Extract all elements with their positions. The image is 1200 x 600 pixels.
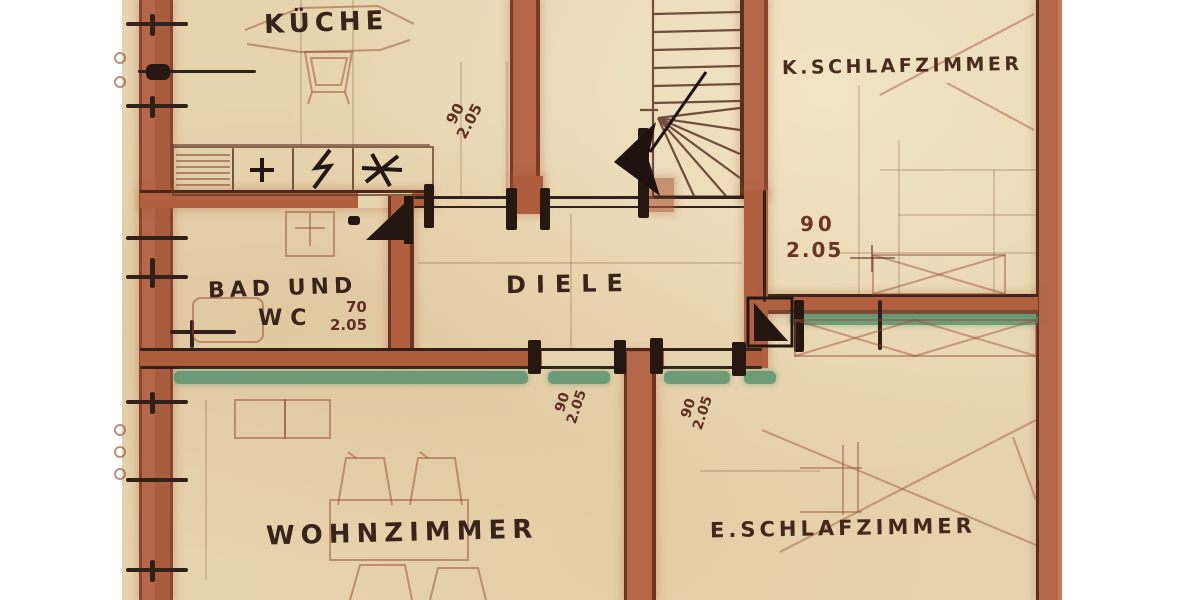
dim-kschlafzimmer-door-height: 2.05 bbox=[786, 238, 843, 262]
sink-plus-symbol bbox=[250, 158, 274, 182]
stove-symbol bbox=[314, 150, 330, 188]
dim-bad-door-height: 2.05 bbox=[330, 316, 367, 334]
room-label-kueche: KÜCHE bbox=[264, 6, 389, 40]
door-swing-icon bbox=[748, 298, 792, 346]
room-label-diele: DIELE bbox=[506, 269, 633, 299]
dim-kschlafzimmer-door-width: 90 bbox=[800, 212, 836, 236]
margin-dimension-marks bbox=[115, 53, 125, 479]
dim-bad-door-width: 70 bbox=[346, 298, 367, 316]
scan-margin-right bbox=[1062, 0, 1200, 600]
room-label-k-schlafzimmer: K.SCHLAFZIMMER bbox=[782, 53, 1023, 79]
scan-margin-left bbox=[0, 0, 110, 600]
room-label-bad-line1: BAD UND bbox=[208, 273, 358, 303]
wohnzimmer-furniture bbox=[235, 400, 486, 600]
room-label-e-schlafzimmer: E.SCHLAFZIMMER bbox=[710, 514, 976, 543]
door-swing-icon bbox=[348, 196, 413, 244]
staircase bbox=[640, 0, 744, 197]
plan-sketch-layer bbox=[0, 0, 1200, 600]
hatch-symbol bbox=[362, 154, 402, 186]
floorplan-canvas: KÜCHE K.SCHLAFZIMMER BAD UND WC DIELE WO… bbox=[0, 0, 1200, 600]
room-label-bad-line2: WC bbox=[258, 306, 314, 331]
dimension-cross bbox=[850, 245, 895, 272]
